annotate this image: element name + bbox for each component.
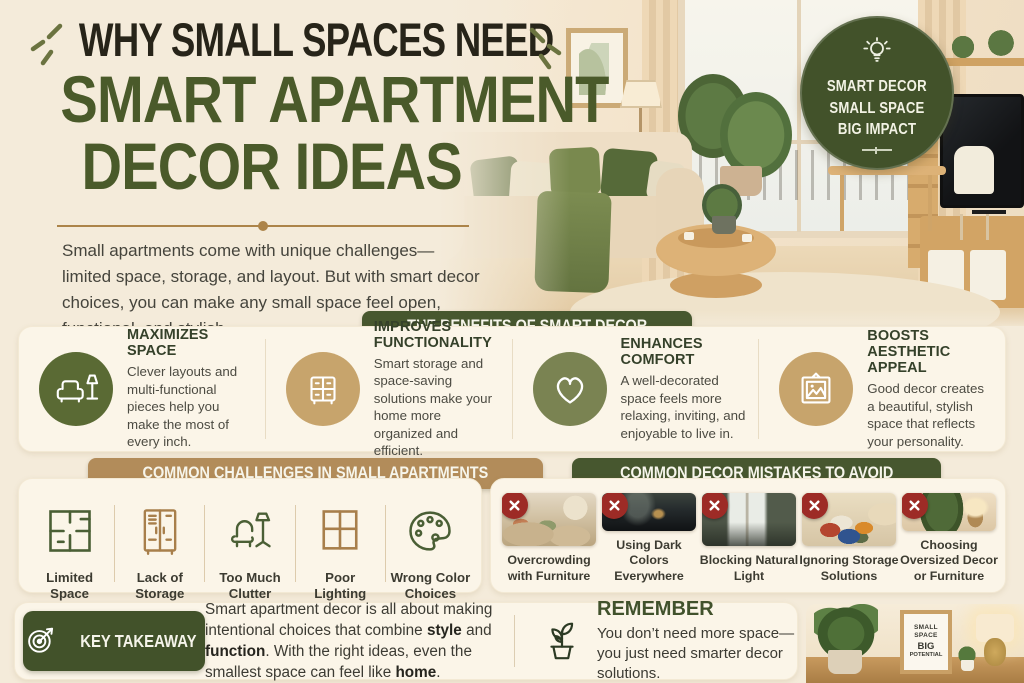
benefit-title: ENHANCES COMFORT <box>621 336 749 368</box>
mistake-photo-dark-colors <box>602 493 696 531</box>
mistake-item: Using Dark Colors Everywhere <box>599 493 699 584</box>
page-title-line1: WHY SMALL SPACES NEED <box>79 14 554 66</box>
floor-plan-icon <box>44 505 96 562</box>
challenge-item: Poor Lighting <box>295 505 385 582</box>
mistake-label: Using Dark Colors Everywhere <box>597 538 701 585</box>
mistake-photo-overcrowding <box>502 493 596 546</box>
page-title-line3: DECOR IDEAS <box>82 133 462 200</box>
sparkle-left-icon <box>30 22 64 68</box>
benefits-card: MAXIMIZES SPACE Clever layouts and multi… <box>18 326 1006 452</box>
x-mark-icon <box>702 493 728 519</box>
hero-circle-badge: SMART DECOR SMALL SPACE BIG IMPACT <box>800 16 954 170</box>
heart-icon <box>533 352 607 426</box>
mistake-item: Blocking Natural Light <box>699 493 799 584</box>
benefit-item: BOOSTS AESTHETIC APPEAL Good decor creat… <box>758 339 1005 439</box>
remember-block: REMEMBER You don’t need more space—you j… <box>539 598 797 683</box>
benefit-item: MAXIMIZES SPACE Clever layouts and multi… <box>19 339 265 439</box>
photo-small-pot <box>961 660 974 671</box>
title-divider-dot <box>258 221 268 231</box>
x-mark-icon <box>802 493 828 519</box>
picture-frame-icon <box>779 352 853 426</box>
challenge-label: Too Much Clutter <box>210 570 290 602</box>
sparkle-right-icon <box>528 26 562 72</box>
challenge-item: Too Much Clutter <box>204 505 294 582</box>
takeaway-card: KEY TAKEAWAY Smart apartment decor is al… <box>14 602 798 680</box>
mistakes-card: Overcrowding with Furniture Using Dark C… <box>490 478 1006 593</box>
benefit-copy: BOOSTS AESTHETIC APPEAL Good decor creat… <box>867 328 995 450</box>
mistake-label: Overcrowding with Furniture <box>497 553 601 584</box>
remember-copy: REMEMBER You don’t need more space—you j… <box>597 598 797 683</box>
mistake-photo-oversized-decor <box>902 493 996 531</box>
photo-lamp-base <box>984 638 1006 666</box>
remember-title: REMEMBER <box>597 598 797 621</box>
lightbulb-icon <box>859 35 895 76</box>
benefit-copy: MAXIMIZES SPACE Clever layouts and multi… <box>127 327 255 451</box>
benefit-item: ENHANCES COMFORT A well-decorated space … <box>512 339 759 439</box>
benefit-text: A well-decorated space feels more relaxi… <box>621 372 749 442</box>
mistake-label: Ignoring Storage Solutions <box>797 553 901 584</box>
hero-wall-shelf <box>942 58 1024 66</box>
x-mark-icon <box>902 493 928 519</box>
hero-tv-stand <box>972 210 1006 214</box>
bottom-photo-console: SMALL SPACE BIG POTENTIAL <box>806 604 1024 683</box>
x-mark-icon <box>602 493 628 519</box>
mistake-photo-blocked-light <box>702 493 796 546</box>
key-takeaway-badge: KEY TAKEAWAY <box>23 611 205 671</box>
badge-line-1: SMART DECOR <box>827 76 927 98</box>
challenge-item: Lack of Storage <box>114 505 204 582</box>
armchair-lamp-icon <box>224 505 276 562</box>
challenge-label: Lack of Storage <box>120 570 200 602</box>
hero-shelf-plant <box>950 34 976 60</box>
wardrobe-icon <box>134 505 186 562</box>
page-title-line2: SMART APARTMENT <box>60 66 608 133</box>
benefit-text: Smart storage and space-saving solutions… <box>374 355 502 460</box>
hero-floor-lamp-shade <box>620 80 662 108</box>
hero-cup <box>742 234 752 242</box>
mistake-label: Choosing Oversized Decor or Furniture <box>897 538 1001 585</box>
bottom-divider <box>514 615 516 667</box>
benefit-copy: ENHANCES COMFORT A well-decorated space … <box>621 336 749 442</box>
mistake-item: Ignoring Storage Solutions <box>799 493 899 584</box>
mistake-label: Blocking Natural Light <box>697 553 801 584</box>
challenge-label: Wrong Color Choices <box>390 570 470 602</box>
challenge-item: Limited Space <box>25 505 114 582</box>
remember-text: You don’t need more space—you just need … <box>597 624 797 683</box>
hero-shelf-plant <box>986 28 1016 58</box>
potted-plant-icon <box>539 616 585 667</box>
hero-cup <box>684 232 694 240</box>
mistake-item: Choosing Oversized Decor or Furniture <box>899 493 999 584</box>
sign-line: POTENTIAL <box>910 652 943 659</box>
infographic-smart-apartment-decor: SMART DECOR SMALL SPACE BIG IMPACT WHY S… <box>0 0 1024 683</box>
x-mark-icon <box>502 493 528 519</box>
key-takeaway-label: KEY TAKEAWAY <box>80 631 196 652</box>
target-arrow-icon <box>22 620 60 663</box>
hero-table-leg <box>928 175 932 231</box>
title-block: WHY SMALL SPACES NEED SMART APARTMENT DE… <box>12 14 532 200</box>
hero-table-leg <box>840 175 844 231</box>
badge-divider <box>862 149 892 151</box>
hero-table-plant-pot <box>712 216 736 234</box>
sign-line: BIG <box>918 641 935 653</box>
photo-plant-pot <box>828 650 862 674</box>
badge-line-3: BIG IMPACT <box>838 119 916 141</box>
hero-dining-chair <box>954 146 994 194</box>
challenge-item: Wrong Color Choices <box>385 505 475 582</box>
photo-framed-sign: SMALL SPACE BIG POTENTIAL <box>900 610 952 674</box>
challenges-card: Limited Space Lack of Storage Too Much C… <box>18 478 482 593</box>
challenge-label: Limited Space <box>30 570 110 602</box>
benefit-title: MAXIMIZES SPACE <box>127 327 255 359</box>
badge-line-2: SMALL SPACE <box>829 98 924 120</box>
hero-chair-leg <box>986 214 989 240</box>
sign-line: SPACE <box>914 632 937 640</box>
paint-palette-icon <box>404 505 456 562</box>
benefit-text: Good decor creates a beautiful, stylish … <box>867 380 995 450</box>
challenge-label: Poor Lighting <box>300 570 380 602</box>
window-icon <box>314 505 366 562</box>
takeaway-text: Smart apartment decor is all about makin… <box>205 599 496 683</box>
mistake-item: Overcrowding with Furniture <box>499 493 599 584</box>
benefit-copy: IMPROVES FUNCTIONALITY Smart storage and… <box>374 319 502 460</box>
mistake-photo-storage-pile <box>802 493 896 546</box>
hero-chair-leg <box>960 214 963 240</box>
benefit-title: IMPROVES FUNCTIONALITY <box>374 319 502 351</box>
benefit-title: BOOSTS AESTHETIC APPEAL <box>867 328 995 376</box>
benefit-text: Clever layouts and multi-functional piec… <box>127 363 255 451</box>
benefit-item: IMPROVES FUNCTIONALITY Smart storage and… <box>265 339 512 439</box>
sign-line: SMALL <box>914 624 938 632</box>
sofa-lamp-icon <box>39 352 113 426</box>
dresser-icon <box>286 352 360 426</box>
